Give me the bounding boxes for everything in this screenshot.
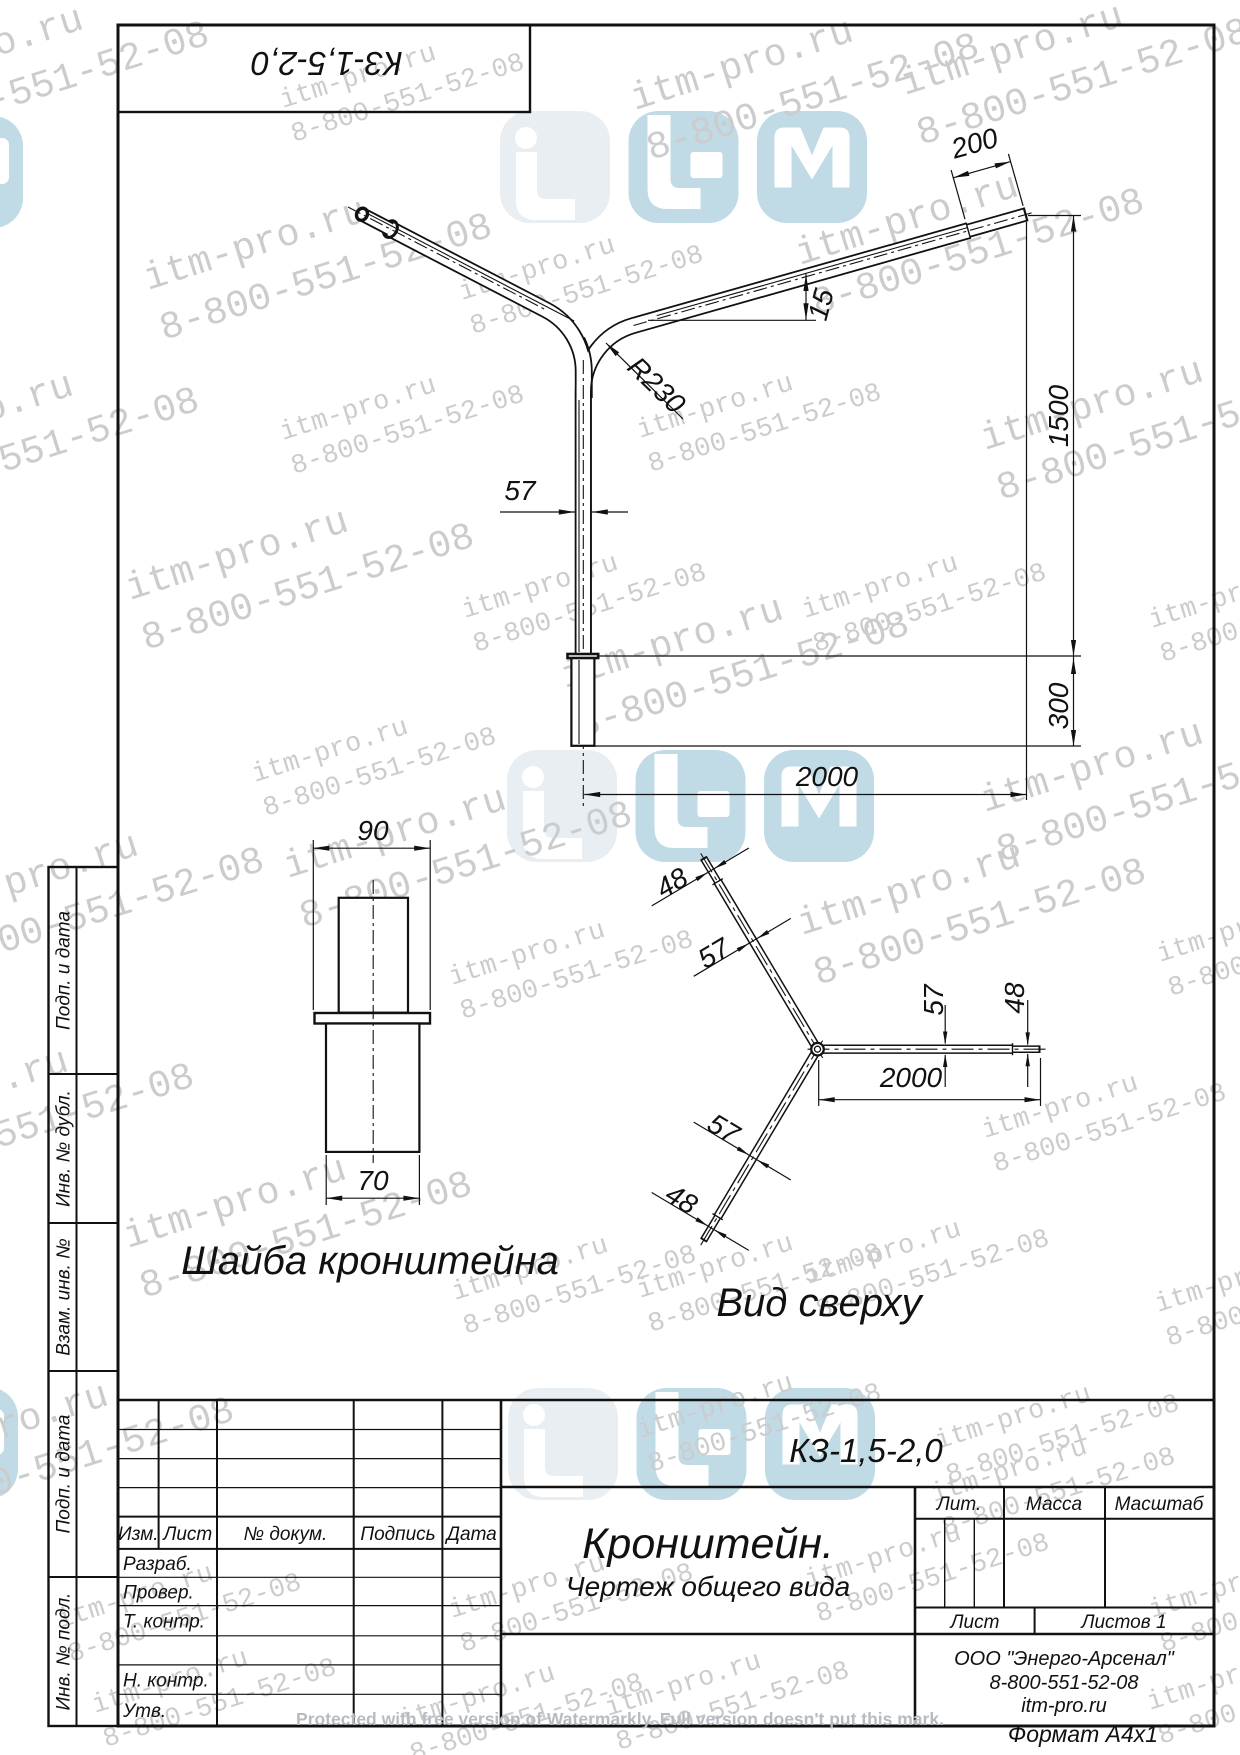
svg-text:57: 57	[504, 475, 537, 506]
svg-text:Т. контр.: Т. контр.	[123, 1612, 205, 1633]
svg-text:300: 300	[1043, 682, 1074, 729]
svg-text:Взам. инв. №: Взам. инв. №	[54, 1238, 75, 1356]
svg-text:Кронштейн.: Кронштейн.	[582, 1520, 834, 1568]
svg-text:8-800-551-52-08: 8-800-551-52-08	[990, 1672, 1139, 1694]
svg-text:Лист: Лист	[949, 1612, 1000, 1633]
svg-text:Лит.: Лит.	[935, 1494, 982, 1515]
svg-text:1500: 1500	[1043, 384, 1074, 447]
svg-text:КЗ-1,5-2,0: КЗ-1,5-2,0	[789, 1432, 943, 1469]
svg-text:Дата: Дата	[445, 1524, 497, 1545]
svg-text:Изм.: Изм.	[118, 1524, 159, 1545]
svg-text:Н. контр.: Н. контр.	[123, 1671, 209, 1692]
svg-text:Масса: Масса	[1026, 1494, 1082, 1515]
svg-text:Инв. № дубл.: Инв. № дубл.	[54, 1090, 75, 1207]
svg-text:Подп. и дата: Подп. и дата	[54, 911, 75, 1030]
svg-text:Чертеж общего вида: Чертеж общего вида	[566, 1571, 850, 1602]
svg-text:2000: 2000	[879, 1062, 943, 1093]
svg-text:57: 57	[918, 983, 949, 1016]
svg-text:Лист: Лист	[161, 1524, 212, 1545]
svg-text:ООО "Энерго-Арсенал": ООО "Энерго-Арсенал"	[954, 1648, 1175, 1670]
svg-text:70: 70	[357, 1165, 389, 1196]
svg-text:К3-1,5-2,0: К3-1,5-2,0	[251, 45, 403, 82]
svg-text:2000: 2000	[795, 761, 859, 792]
svg-text:90: 90	[357, 815, 389, 846]
svg-text:Масштаб: Масштаб	[1115, 1494, 1205, 1515]
svg-text:Провер.: Провер.	[123, 1582, 194, 1603]
svg-text:Подп. и дата: Подп. и дата	[54, 1415, 75, 1534]
svg-text:Вид сверху: Вид сверху	[716, 1281, 924, 1325]
svg-text:Protected with free version of: Protected with free version of Watermark…	[296, 1709, 944, 1729]
svg-text:Утв.: Утв.	[122, 1701, 166, 1722]
svg-text:Подпись: Подпись	[360, 1524, 435, 1545]
svg-text:Шайба кронштейна: Шайба кронштейна	[181, 1239, 559, 1283]
svg-text:Инв. № подл.: Инв. № подл.	[54, 1593, 75, 1711]
svg-text:Формат А4х1: Формат А4х1	[1008, 1721, 1158, 1747]
svg-text:itm-pro.ru: itm-pro.ru	[1021, 1695, 1107, 1717]
svg-text:№ докум.: № докум.	[244, 1524, 328, 1545]
svg-text:48: 48	[999, 982, 1030, 1014]
svg-text:Разраб.: Разраб.	[123, 1554, 192, 1575]
svg-text:Листов 1: Листов 1	[1079, 1612, 1166, 1633]
